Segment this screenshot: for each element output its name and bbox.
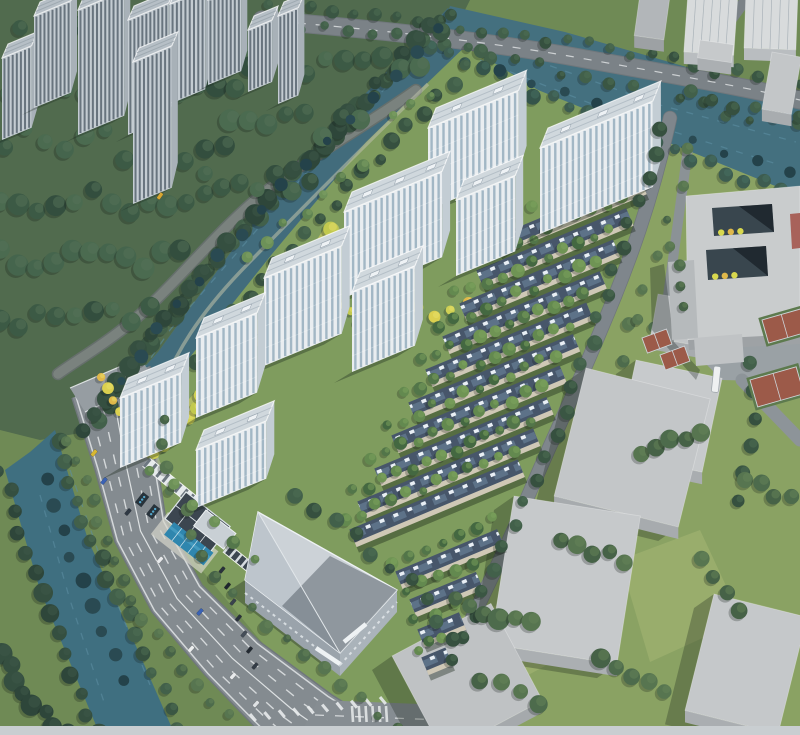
- courtyard-planting: [728, 229, 734, 235]
- aerial-site-rendering: [0, 0, 800, 735]
- courtyard-planting: [718, 229, 724, 235]
- courtyard-planting: [731, 272, 737, 278]
- crosswalk-bar: [386, 706, 387, 722]
- crosswalk-bar: [366, 706, 367, 722]
- courtyard-planting: [712, 273, 718, 279]
- crosswalk-bar: [359, 706, 360, 722]
- context-box-ne-5: [698, 40, 734, 75]
- courtyard-planting: [722, 273, 728, 279]
- image-frame: [0, 726, 800, 735]
- context-slab-ne-2: [744, 0, 798, 62]
- u-building-wing: [668, 260, 698, 340]
- box-top: [634, 0, 670, 40]
- tower-side: [172, 32, 178, 188]
- aerial-rendering-stage: [0, 0, 800, 735]
- tower-facade: [208, 0, 241, 85]
- crosswalk-bar: [352, 706, 353, 722]
- bottom-border: [0, 726, 800, 735]
- courtyard-planting: [737, 228, 743, 234]
- tower-facade: [248, 20, 272, 92]
